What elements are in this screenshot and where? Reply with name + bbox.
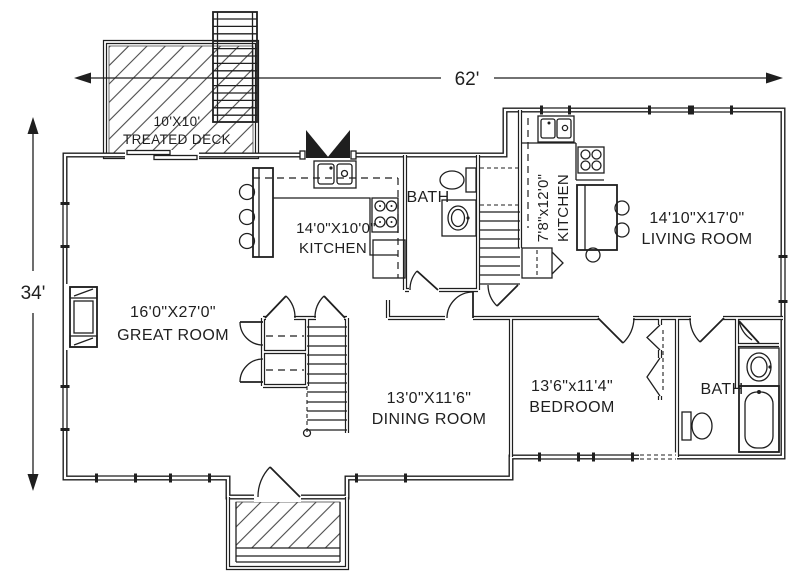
window — [61, 385, 70, 431]
floor-plan: 62' 34' — [0, 0, 798, 579]
kitchen2-name-label: KITCHEN — [555, 174, 572, 242]
kitchen2-size-label: 7'8"x12'0" — [535, 174, 552, 243]
height-dimension-label: 34' — [21, 283, 46, 304]
dining-size-label: 13'0"X11'6" — [387, 390, 472, 407]
kitchen-size-label: 14'0"X10'0" — [296, 220, 376, 237]
window — [538, 453, 580, 462]
kitchen-peninsula — [253, 168, 273, 257]
window — [592, 453, 634, 462]
stair-hall-door — [488, 285, 518, 306]
french-doors — [300, 130, 356, 160]
living-size-label: 14'10"X17'0" — [649, 210, 744, 227]
floor-plan-drawing: 62' 34' — [0, 0, 798, 579]
living-name-label: LIVING ROOM — [641, 231, 752, 248]
bath2-closet — [739, 321, 759, 343]
window — [691, 106, 733, 115]
toilet2 — [682, 412, 712, 440]
kitchen2-stove — [578, 147, 604, 173]
deck-size-label: 10'X10' — [154, 114, 201, 129]
kitchen2-sink — [538, 116, 574, 142]
interior-walls — [263, 110, 783, 457]
fireplace — [66, 284, 100, 350]
front-door — [254, 467, 301, 502]
deck-name-label: TREATED DECK — [123, 132, 231, 147]
window — [540, 106, 571, 115]
bath2-vanity-sink — [739, 348, 779, 386]
window — [779, 255, 788, 303]
dining-name-label: DINING ROOM — [372, 411, 487, 428]
width-dimension-label: 62' — [455, 69, 480, 90]
window — [95, 474, 137, 483]
window — [355, 474, 407, 483]
kitchen-sink — [314, 161, 356, 188]
window — [61, 202, 70, 248]
great-size-label: 16'0"X27'0" — [130, 304, 216, 321]
window-dashed — [639, 453, 677, 462]
bathtub — [739, 386, 779, 452]
bedroom-size-label: 13'6"x11'4" — [531, 378, 613, 395]
stairs-upper-run — [480, 168, 520, 284]
kitchen2-bar — [577, 185, 629, 262]
bedroom-name-label: BEDROOM — [529, 399, 614, 416]
stairs-lower-run — [304, 327, 348, 437]
sliding-door — [125, 150, 199, 160]
bath-label: BATH — [406, 189, 449, 206]
great-name-label: GREAT ROOM — [117, 327, 229, 344]
entry-porch — [228, 497, 347, 568]
kitchen-name-label: KITCHEN — [299, 240, 367, 257]
window — [648, 106, 691, 115]
dimension-height: 34' — [21, 117, 46, 491]
stove — [372, 198, 398, 232]
bath2-label: BATH — [700, 381, 743, 398]
window — [169, 474, 211, 483]
pantry-closet — [522, 248, 563, 278]
